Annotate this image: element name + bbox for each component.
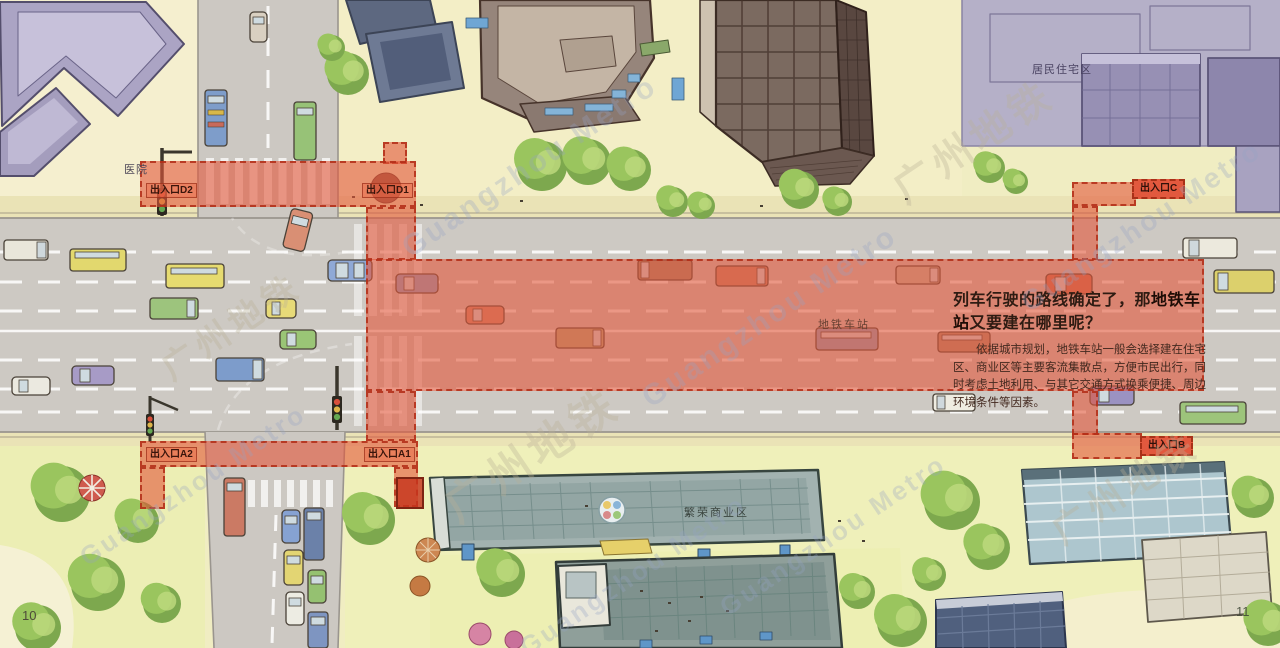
dark-building bbox=[936, 592, 1066, 648]
commercial-building-2 bbox=[556, 554, 842, 648]
red-tree bbox=[371, 173, 401, 203]
crosswalk-north bbox=[206, 158, 330, 204]
parasol bbox=[79, 475, 105, 501]
book-page-illustration: 出入口D2 出入口D1 出入口C 出入口A2 出入口A1 出入口B 地铁车站 医… bbox=[0, 0, 1280, 648]
city-illustration bbox=[0, 0, 1280, 648]
